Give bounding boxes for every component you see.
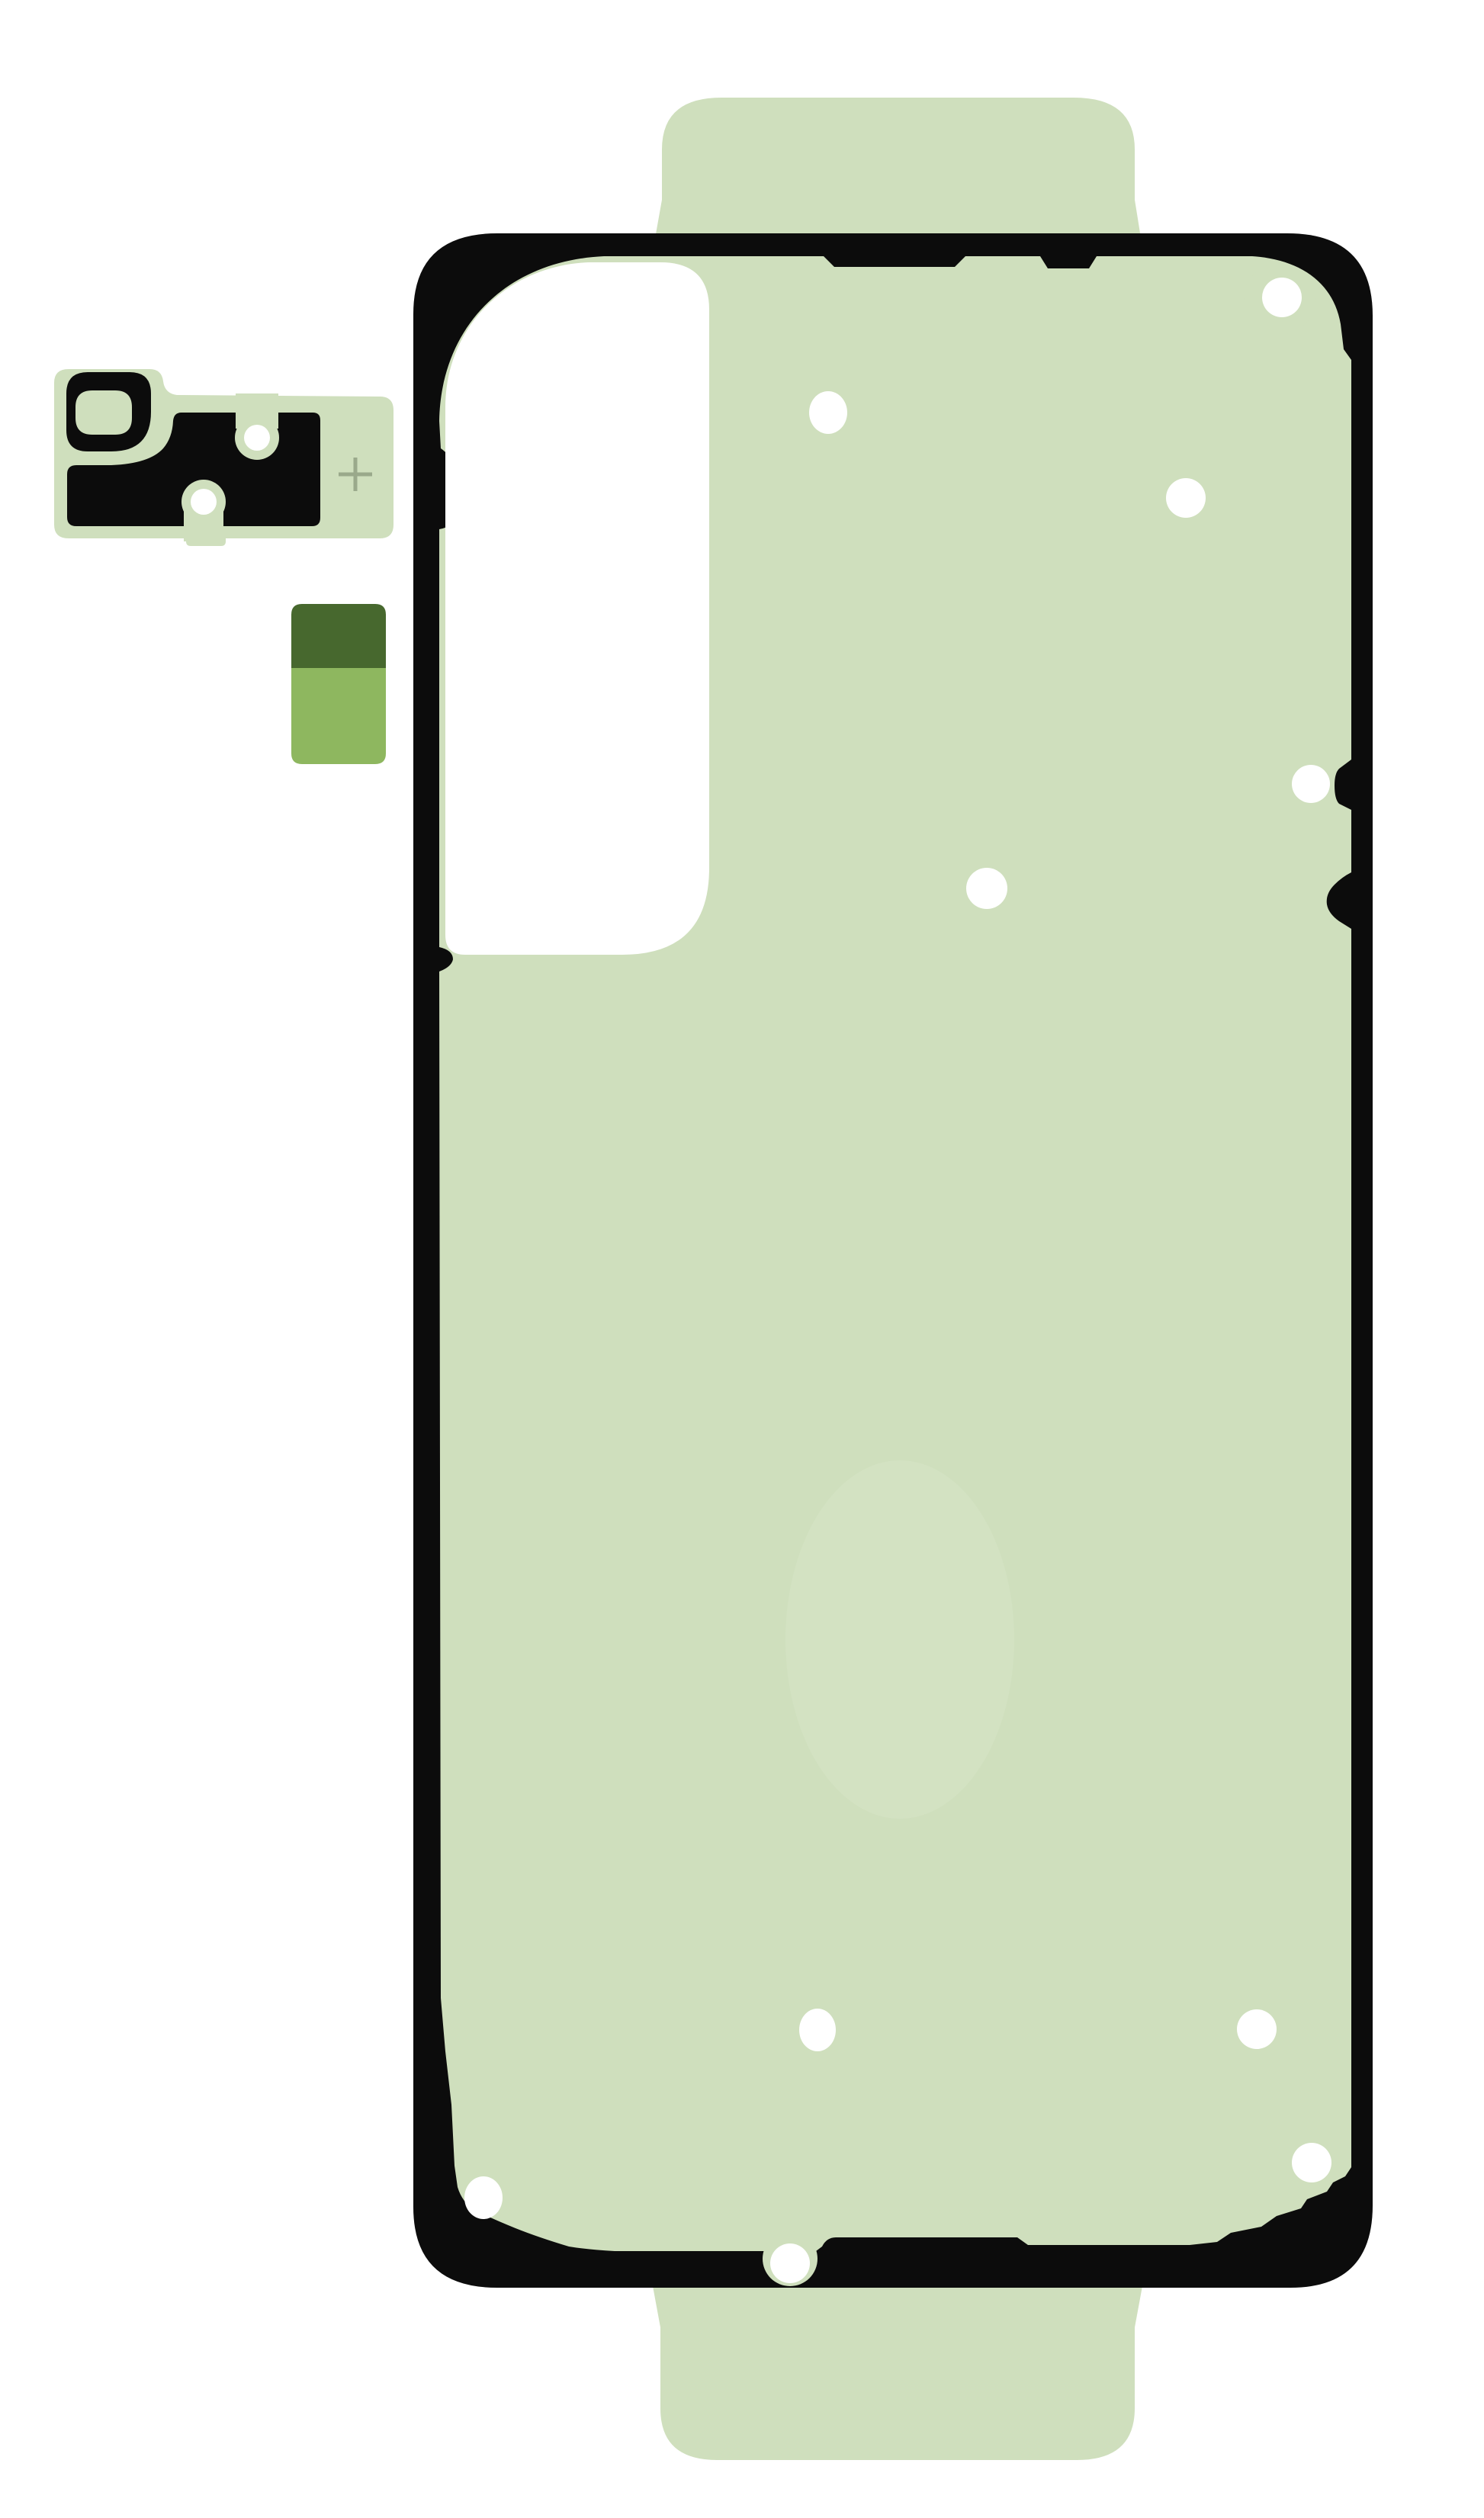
spare-square-dark xyxy=(291,604,386,668)
alignment-hole xyxy=(809,391,847,434)
alignment-hole xyxy=(1292,765,1330,803)
sheet-watermark xyxy=(785,1460,1014,1819)
alignment-hole xyxy=(770,2243,810,2283)
spare-square-light xyxy=(291,668,386,764)
alignment-hole xyxy=(1237,2009,1277,2049)
alignment-hole xyxy=(966,868,1007,909)
product-image xyxy=(0,0,1484,2518)
screw-hole xyxy=(244,425,270,451)
alignment-hole xyxy=(1262,278,1302,317)
screw-hole xyxy=(191,489,217,515)
alignment-hole xyxy=(1166,478,1206,518)
alignment-hole xyxy=(1292,2143,1331,2182)
main-adhesive-sheet xyxy=(413,233,1373,2288)
alignment-hole xyxy=(799,2009,836,2051)
spare-adhesive-squares xyxy=(291,604,386,764)
alignment-hole xyxy=(464,2176,503,2219)
adhesive-kit-graphic xyxy=(0,0,1484,2518)
bottom-pull-tab xyxy=(653,2286,1142,2460)
top-pull-tab xyxy=(654,98,1142,242)
camera-cutout xyxy=(445,262,709,955)
